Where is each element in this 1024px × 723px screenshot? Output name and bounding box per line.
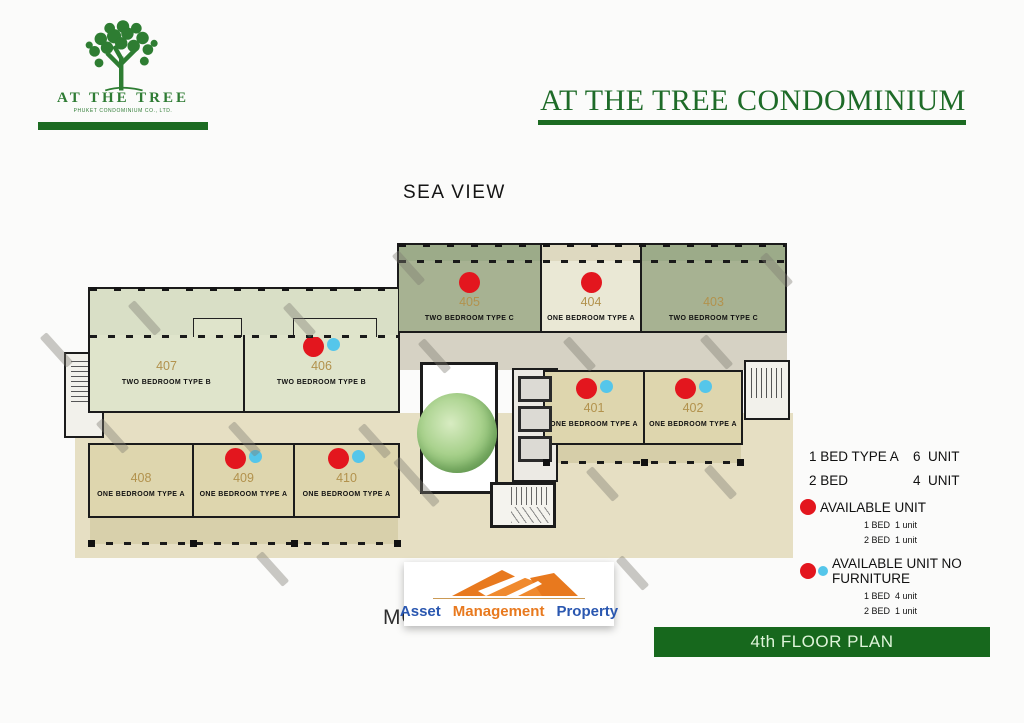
summary-count: 4 UNIT bbox=[913, 473, 960, 488]
available-red-dot-icon bbox=[581, 272, 602, 293]
unit-number: 401 bbox=[584, 401, 605, 415]
summary-label: 1 BED TYPE A bbox=[809, 449, 913, 464]
courtyard-tree-icon bbox=[417, 393, 497, 473]
legend: 1 BED TYPE A 6 UNIT 2 BED 4 UNIT AVAILAB… bbox=[800, 449, 1024, 643]
availability-dots bbox=[576, 377, 613, 399]
wall-post bbox=[190, 540, 197, 547]
availability-dots bbox=[328, 447, 365, 469]
legend-sub-row: 2 BED 1 unit bbox=[864, 535, 1024, 545]
staircase-right bbox=[744, 360, 790, 420]
unit-number: 409 bbox=[233, 471, 254, 485]
wall-post bbox=[88, 540, 95, 547]
unit-type: ONE BEDROOM TYPE A bbox=[547, 315, 635, 322]
unit-type: ONE BEDROOM TYPE A bbox=[200, 491, 288, 498]
legend-no-furniture: AVAILABLE UNIT NO FURNITURE bbox=[800, 556, 1024, 586]
no-furniture-blue-dot-icon bbox=[352, 450, 365, 463]
wall-post bbox=[543, 459, 550, 466]
logo-subtitle: PHUKET CONDOMINIUM CO., LTD. bbox=[38, 108, 208, 114]
unit-type: TWO BEDROOM TYPE B bbox=[122, 379, 211, 386]
unit-409: 409ONE BEDROOM TYPE A bbox=[192, 443, 295, 518]
unit-type: ONE BEDROOM TYPE A bbox=[97, 491, 185, 498]
availability-dots bbox=[581, 271, 602, 293]
unit-405: 405TWO BEDROOM TYPE C bbox=[397, 243, 542, 333]
unit-number: 410 bbox=[336, 471, 357, 485]
available-red-dot-icon bbox=[303, 336, 324, 357]
legend-available-label: AVAILABLE UNIT bbox=[820, 500, 926, 515]
unit-number: 408 bbox=[131, 471, 152, 485]
amp-word: Property bbox=[556, 603, 618, 620]
no-furniture-blue-dot-icon bbox=[600, 380, 613, 393]
shadow-mark bbox=[616, 555, 649, 591]
availability-dots bbox=[459, 271, 480, 293]
unit-408: 408ONE BEDROOM TYPE A bbox=[88, 443, 194, 518]
unit-407: 407TWO BEDROOM TYPE B bbox=[88, 287, 245, 413]
staircase-central bbox=[490, 482, 556, 528]
logo-title: AT THE TREE bbox=[38, 90, 208, 107]
wall-ticks bbox=[399, 243, 785, 247]
summary-count: 6 UNIT bbox=[913, 449, 960, 464]
unit-number: 405 bbox=[459, 295, 480, 309]
amp-wordmark: Asset Management Property bbox=[400, 603, 618, 620]
amp-word: Asset bbox=[400, 603, 441, 620]
wall-post bbox=[641, 459, 648, 466]
no-furniture-blue-dot-icon bbox=[818, 566, 828, 576]
balcony-railing bbox=[88, 542, 400, 545]
available-red-dot-icon bbox=[576, 378, 597, 399]
unit-number: 402 bbox=[683, 401, 704, 415]
unit-404: 404ONE BEDROOM TYPE A bbox=[540, 243, 642, 333]
available-red-dot-icon bbox=[459, 272, 480, 293]
available-red-dot-icon bbox=[800, 499, 816, 515]
mountain-icon bbox=[424, 564, 594, 602]
no-furniture-blue-dot-icon bbox=[249, 450, 262, 463]
legend-summary-row: 2 BED 4 UNIT bbox=[809, 473, 1024, 488]
legend-sub-row: 1 BED 4 unit bbox=[864, 591, 1024, 601]
availability-dots bbox=[675, 377, 712, 399]
unit-type: TWO BEDROOM TYPE C bbox=[425, 315, 514, 322]
legend-sub-row: 1 BED 1 unit bbox=[864, 520, 1024, 530]
available-red-dot-icon bbox=[675, 378, 696, 399]
availability-dots bbox=[303, 335, 340, 357]
legend-no-furniture-label: AVAILABLE UNIT NO FURNITURE bbox=[832, 556, 1024, 586]
unit-type: TWO BEDROOM TYPE B bbox=[277, 379, 366, 386]
unit-401: 401ONE BEDROOM TYPE A bbox=[543, 370, 645, 445]
tree-icon bbox=[64, 14, 182, 94]
legend-available: AVAILABLE UNIT bbox=[800, 499, 1024, 515]
unit-number: 406 bbox=[311, 359, 332, 373]
unit-number: 404 bbox=[581, 295, 602, 309]
elevator-shaft bbox=[518, 376, 552, 402]
wall-ticks bbox=[90, 287, 398, 291]
unit-410: 410ONE BEDROOM TYPE A bbox=[293, 443, 400, 518]
unit-type: TWO BEDROOM TYPE C bbox=[669, 315, 758, 322]
no-furniture-blue-dot-icon bbox=[327, 338, 340, 351]
amp-word: Management bbox=[453, 603, 545, 620]
wall-post bbox=[394, 540, 401, 547]
company-logo: AT THE TREE PHUKET CONDOMINIUM CO., LTD. bbox=[38, 14, 208, 114]
wall-post bbox=[737, 459, 744, 466]
legend-sub-row: 2 BED 1 unit bbox=[864, 606, 1024, 616]
floor-plan-banner: 4th FLOOR PLAN bbox=[654, 627, 990, 657]
unit-403: 403TWO BEDROOM TYPE C bbox=[640, 243, 787, 333]
unit-number: 407 bbox=[156, 359, 177, 373]
balcony-strip bbox=[90, 518, 398, 544]
availability-dots bbox=[225, 447, 262, 469]
summary-label: 2 BED bbox=[809, 473, 913, 488]
wall-post bbox=[291, 540, 298, 547]
unit-406: 406TWO BEDROOM TYPE B bbox=[243, 287, 400, 413]
elevator-shaft bbox=[518, 406, 552, 432]
unit-type: ONE BEDROOM TYPE A bbox=[303, 491, 391, 498]
available-red-dot-icon bbox=[225, 448, 246, 469]
available-red-dot-icon bbox=[328, 448, 349, 469]
wall-hatch bbox=[90, 335, 398, 338]
unit-402: 402ONE BEDROOM TYPE A bbox=[643, 370, 743, 445]
legend-summary-row: 1 BED TYPE A 6 UNIT bbox=[809, 449, 1024, 464]
available-red-dot-icon bbox=[800, 563, 816, 579]
wall-hatch bbox=[399, 260, 785, 263]
no-furniture-blue-dot-icon bbox=[699, 380, 712, 393]
unit-type: ONE BEDROOM TYPE A bbox=[550, 421, 638, 428]
unit-type: ONE BEDROOM TYPE A bbox=[649, 421, 737, 428]
unit-number: 403 bbox=[703, 295, 724, 309]
amp-logo: Asset Management Property bbox=[404, 562, 614, 626]
